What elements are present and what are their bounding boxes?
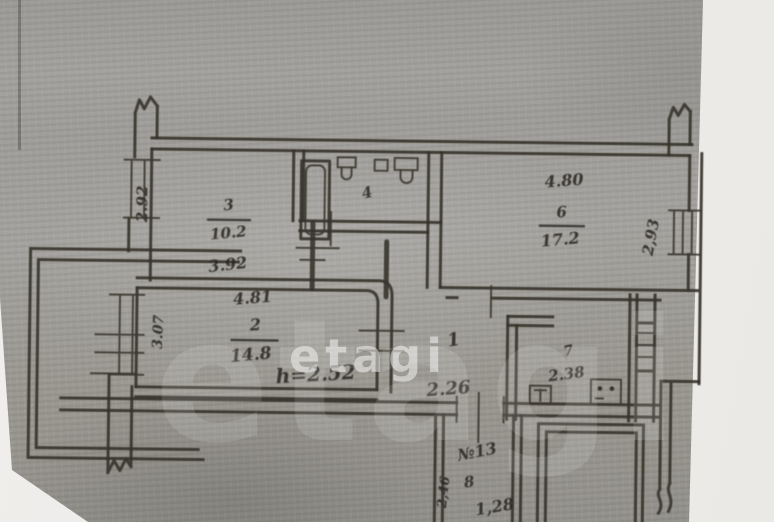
scanned-floor-plan-photo: 2.92 3 10.2 3.92 4 4.80 6 17.2 2,93 4.81…: [0, 0, 774, 522]
dimension-room3-width: 3.92: [207, 253, 248, 276]
dimension-room3-depth: 2.92: [133, 185, 151, 223]
wall-wc-left: [312, 223, 313, 289]
window-room6: [669, 210, 701, 254]
watermark: etagi etagi: [154, 283, 685, 481]
wall-break-top-right: [669, 104, 691, 155]
room-6-number: 6: [556, 203, 568, 222]
floor-plan-svg: 2.92 3 10.2 3.92 4 4.80 6 17.2 2,93 4.81…: [0, 0, 774, 522]
wall-right-outer: [687, 154, 702, 384]
room-6-area: 17.2: [540, 228, 581, 251]
room-3-number: 3: [223, 195, 235, 214]
wall-top: [152, 138, 692, 156]
watermark-text: etagi: [289, 329, 447, 383]
fraction-line: [207, 220, 251, 221]
toilet-icon: [337, 157, 355, 179]
toilet-icon: [394, 158, 417, 183]
wall-bath-room6: [427, 152, 442, 287]
wall-left-room2: [136, 288, 137, 387]
door-ticks-wc: [296, 248, 338, 261]
bathroom-fixtures: [301, 157, 418, 240]
dimension-room8-width: 1,28: [474, 494, 516, 519]
dimension-room6-width: 4.80: [544, 170, 584, 192]
room-3-area: 10.2: [209, 222, 247, 243]
wall-bath-bottom: [300, 221, 441, 233]
room-4-number: 4: [360, 183, 374, 203]
sink-icon: [375, 160, 388, 171]
dimension-room6-depth: 2,93: [638, 218, 663, 258]
fraction-line: [539, 226, 585, 227]
